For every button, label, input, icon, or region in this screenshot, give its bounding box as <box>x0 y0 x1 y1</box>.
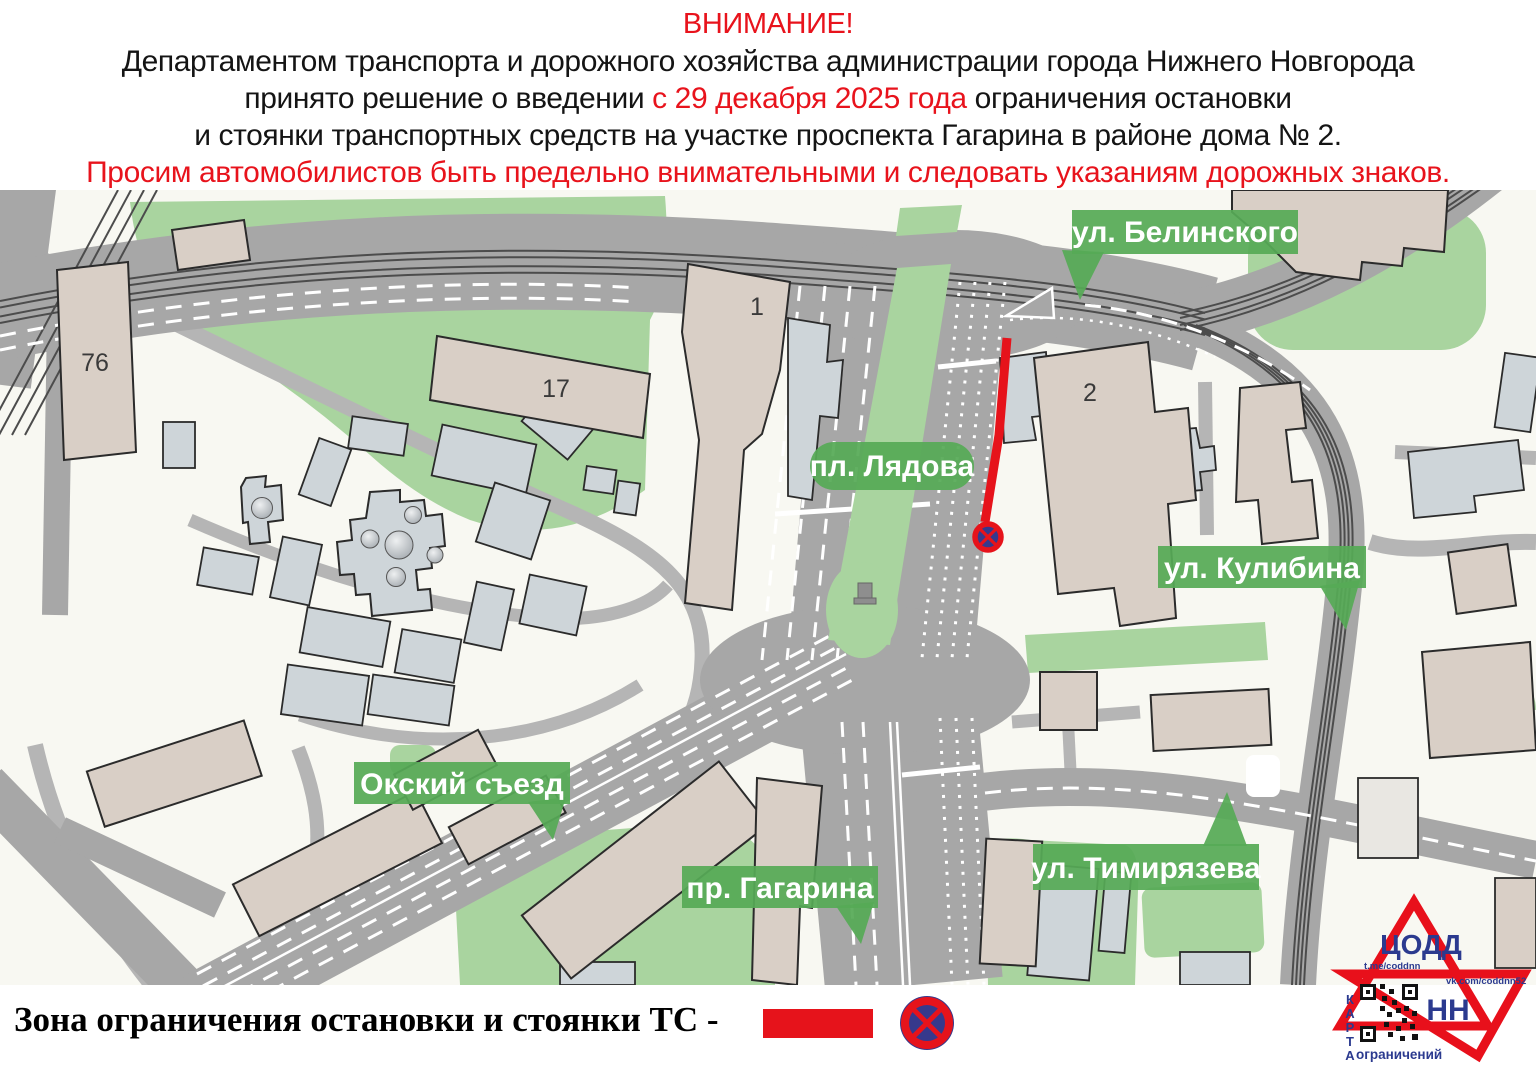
legend-no-stopping-sign <box>898 994 956 1052</box>
header: ВНИМАНИЕ! Департаментом транспорта и дор… <box>0 0 1536 191</box>
logo-telegram: t.me/coddnn <box>1364 961 1421 972</box>
legend-label: Зона ограничения остановки и стоянки ТС … <box>14 1000 719 1040</box>
logo-restrictions-word: ограничений <box>1356 1047 1442 1062</box>
building-number-1: 1 <box>750 293 764 321</box>
city-map: 76 17 1 2 ул. Белинского пл. Лядова <box>0 190 1536 985</box>
street-label-lyadova: пл. Лядова <box>810 442 975 490</box>
building-number-2: 2 <box>1083 379 1097 407</box>
building-number-17: 17 <box>542 375 570 403</box>
header-line-3: и стоянки транспортных средств на участк… <box>0 117 1536 154</box>
svg-text:ул. Белинского: ул. Белинского <box>1072 216 1298 249</box>
header-line-2: принято решение о введении с 29 декабря … <box>0 80 1536 117</box>
svg-text:Окский съезд: Окский съезд <box>360 768 564 801</box>
svg-text:ул. Тимирязева: ул. Тимирязева <box>1031 852 1261 885</box>
header-title: ВНИМАНИЕ! <box>0 6 1536 43</box>
header-line-1: Департаментом транспорта и дорожного хоз… <box>0 43 1536 80</box>
announcement-page: ВНИМАНИЕ! Департаментом транспорта и дор… <box>0 0 1536 1085</box>
svg-text:пл. Лядова: пл. Лядова <box>810 450 975 483</box>
building-number-76: 76 <box>81 349 109 377</box>
no-stopping-sign <box>975 524 1001 550</box>
codd-logo: ЦОДД t.me/coddnn vk.com/coddnn52 НН КАРТ… <box>1326 896 1536 1085</box>
legend-zone-swatch <box>763 1009 873 1038</box>
header-line-4: Просим автомобилистов быть предельно вни… <box>0 154 1536 191</box>
header-line-2-before: принято решение о введении <box>244 82 652 115</box>
header-line-2-after: ограничения остановки <box>967 82 1292 115</box>
header-line-2-date: с 29 декабря 2025 года <box>652 82 967 115</box>
svg-text:пр. Гагарина: пр. Гагарина <box>686 872 873 905</box>
logo-vk: vk.com/coddnn52 <box>1446 976 1526 987</box>
white-court <box>1246 755 1280 797</box>
svg-text:ул. Кулибина: ул. Кулибина <box>1164 552 1360 585</box>
logo-city: НН <box>1426 994 1469 1027</box>
logo-org-name: ЦОДД <box>1380 929 1462 960</box>
